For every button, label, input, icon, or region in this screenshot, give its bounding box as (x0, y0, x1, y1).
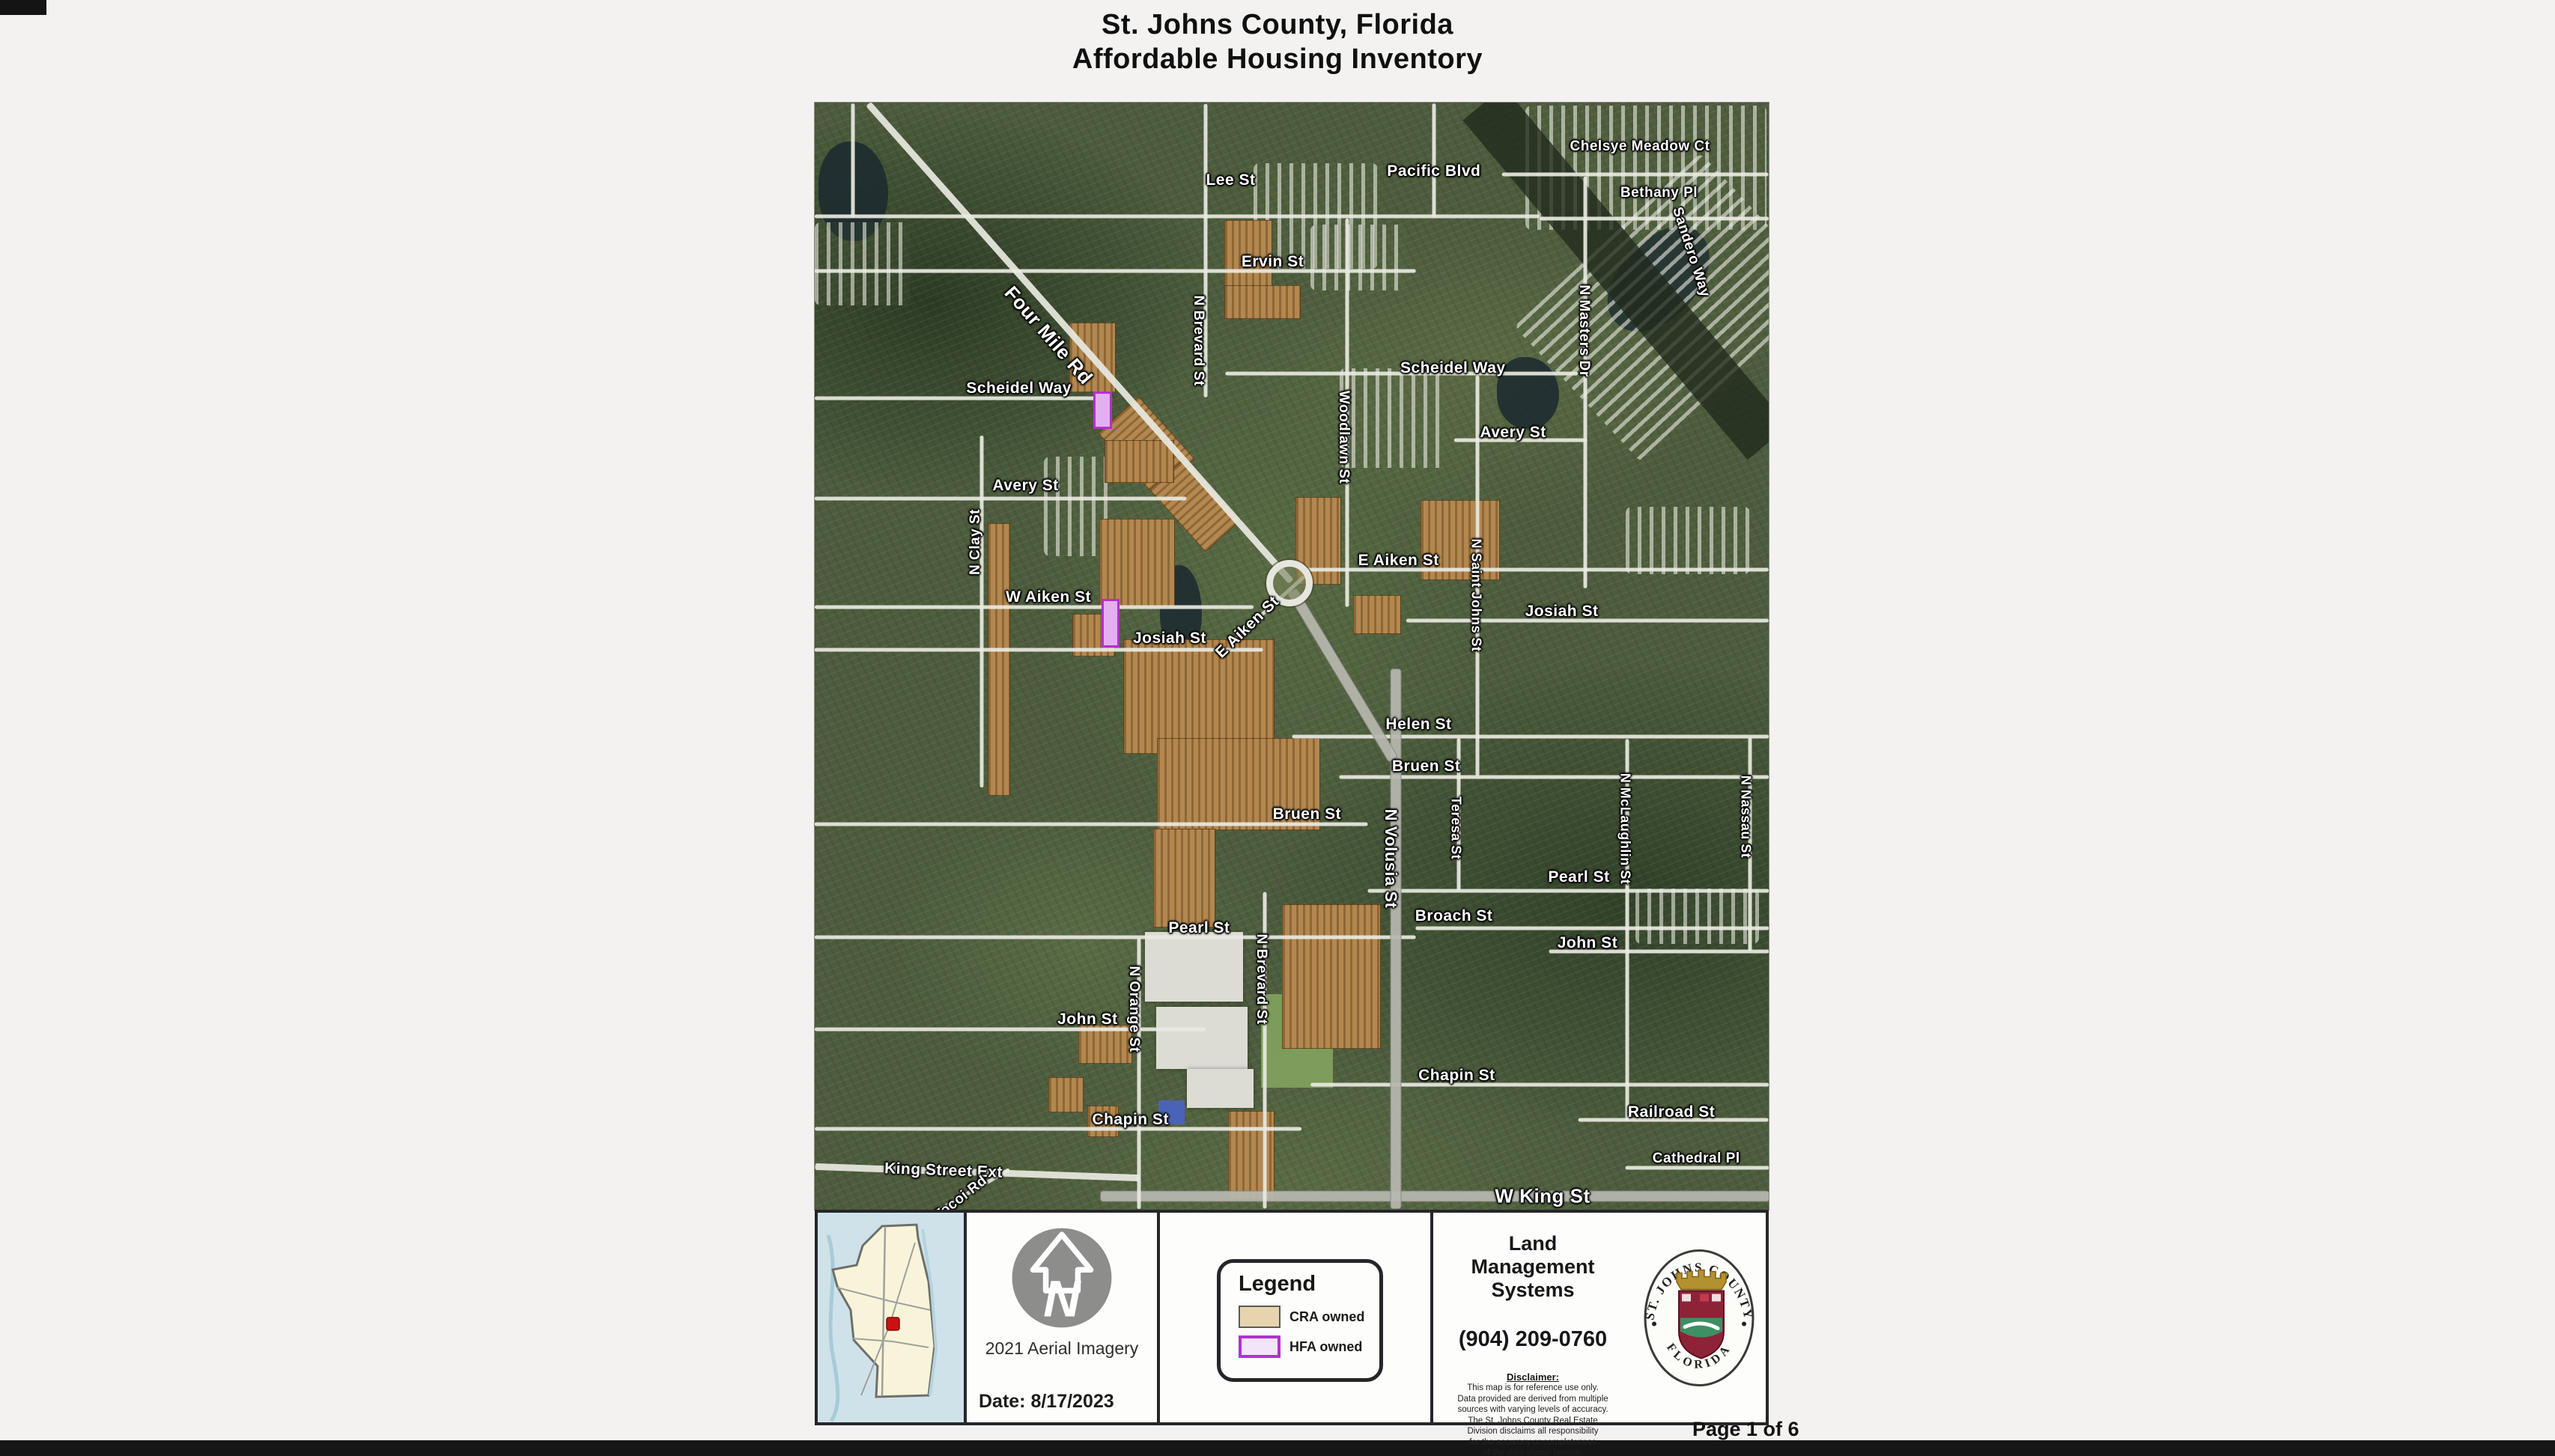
cra-label: CRA owned (1289, 1309, 1364, 1325)
road (1292, 735, 1769, 739)
aerial-map: Lee StPacific BlvdChelsye Meadow CtBetha… (815, 103, 1769, 1210)
county-seal-icon: ST. JOHNS COUNTY FLORIDA (1635, 1241, 1763, 1395)
street-label: Cathedral Pl (1653, 1151, 1740, 1167)
disclaimer-title: Disclaimer: (1433, 1371, 1632, 1383)
cra-parcel (1282, 904, 1381, 1049)
road (815, 1127, 1301, 1131)
street-label: Pearl St (1168, 919, 1230, 937)
street-label: Avery St (1480, 424, 1546, 442)
road (979, 436, 983, 788)
street-label: Teresa St (1448, 796, 1464, 859)
street-label: N Saint Johns St (1468, 539, 1483, 652)
road (1432, 103, 1436, 217)
contact-cell: Land Management Systems (904) 209-0760 D… (1430, 1213, 1766, 1422)
cra-parcel (1105, 440, 1173, 483)
disclaimer-line: Division disclaims all responsibility (1433, 1426, 1632, 1437)
street-label: N Brevard St (1190, 295, 1206, 386)
pond (1497, 357, 1559, 429)
housing-rows (1340, 368, 1444, 468)
disclaimer-line: The St. Johns County Real Estate (1433, 1416, 1632, 1427)
street-label: Chelsye Meadow Ct (1570, 138, 1710, 155)
road (815, 1027, 1206, 1031)
cra-parcel (1123, 639, 1275, 754)
disclaimer-line: sources with varying levels of accuracy. (1433, 1404, 1632, 1416)
title-line-1: St. Johns County, Florida (0, 7, 2555, 42)
housing-rows (815, 222, 910, 305)
road (1584, 177, 1588, 588)
street-label: Broach St (1415, 907, 1493, 925)
road (1368, 889, 1769, 893)
legend-cell: Legend CRA owned HFA owned (1157, 1213, 1430, 1422)
imagery-caption: 2021 Aerial Imagery (967, 1338, 1157, 1359)
phone-number: (904) 209-0760 (1433, 1327, 1632, 1352)
road (815, 936, 1416, 939)
contact-text: Land Management Systems (904) 209-0760 D… (1433, 1213, 1632, 1422)
street-label: Josiah St (1525, 603, 1599, 621)
street-label: Bethany Pl (1620, 185, 1698, 201)
locator-map (818, 1213, 961, 1422)
org-name: Land Management Systems (1450, 1232, 1615, 1302)
street-label: John St (1057, 1011, 1118, 1029)
cra-parcel (1099, 519, 1175, 606)
title-line-2: Affordable Housing Inventory (0, 42, 2555, 76)
legend-item-cra: CRA owned (1239, 1306, 1379, 1328)
street-label: W Aiken St (1006, 588, 1091, 606)
road (1501, 173, 1769, 177)
street-label: Pearl St (1548, 868, 1609, 886)
street-label: W King St (1495, 1185, 1590, 1208)
map-footer: N 2021 Aerial Imagery Date: 8/17/2023 Le… (815, 1210, 1769, 1425)
document-page: St. Johns County, Florida Affordable Hou… (0, 0, 2555, 1456)
street-label: Bruen St (1273, 805, 1342, 823)
locator-marker (887, 1318, 899, 1330)
north-arrow-icon: N (1006, 1222, 1118, 1334)
street-label: Bruen St (1392, 758, 1461, 776)
street-label: N Brevard St (1253, 934, 1269, 1025)
street-label: Chapin St (1418, 1067, 1495, 1085)
cra-parcel (1228, 1111, 1275, 1198)
page-number: Page 1 of 6 (1692, 1418, 1799, 1441)
seal-wrap: ST. JOHNS COUNTY FLORIDA (1632, 1213, 1766, 1422)
legend-box: Legend CRA owned HFA owned (1217, 1259, 1383, 1382)
road (1310, 1082, 1769, 1086)
street-label: N Clay St (967, 509, 984, 575)
hfa-swatch (1239, 1335, 1280, 1358)
cra-parcel (1353, 595, 1401, 634)
street-label: N Volusia St (1381, 809, 1400, 909)
legend-item-hfa: HFA owned (1239, 1335, 1379, 1358)
street-label: N Masters Dr (1576, 284, 1592, 377)
street-label: Josiah St (1133, 630, 1206, 648)
housing-rows (1635, 889, 1760, 944)
county-locator-cell (818, 1213, 964, 1422)
cra-parcel (1224, 285, 1301, 319)
street-label: Scheidel Way (1400, 359, 1506, 377)
map-title: St. Johns County, Florida Affordable Hou… (0, 7, 2555, 76)
road (851, 103, 854, 217)
road (815, 215, 1540, 219)
street-label: John St (1558, 934, 1618, 952)
disclaimer-line: for the accuracy or completeness (1433, 1437, 1632, 1449)
disclaimer-line: This map is for reference use only. (1433, 1383, 1632, 1394)
road (815, 648, 1263, 651)
cra-parcel (1048, 1077, 1084, 1113)
svg-text:N: N (1043, 1270, 1081, 1327)
street-label: Pacific Blvd (1387, 162, 1480, 180)
road (815, 497, 1187, 501)
hfa-label: HFA owned (1289, 1339, 1362, 1355)
street-label: N Nassau St (1738, 776, 1754, 859)
street-label: Railroad St (1628, 1103, 1715, 1121)
disclaimer-line: Data provided are derived from multiple (1433, 1394, 1632, 1405)
housing-rows (1626, 507, 1750, 574)
street-label: N Orange St (1125, 966, 1142, 1053)
street-label: Ervin St (1242, 253, 1304, 271)
building (1187, 1069, 1254, 1108)
street-label: Woodlawn St (1335, 390, 1352, 483)
street-label: Avery St (992, 477, 1058, 495)
building (1156, 1007, 1248, 1069)
road (1101, 1192, 1769, 1201)
street-label: Scheidel Way (966, 380, 1072, 397)
legend-title: Legend (1239, 1272, 1379, 1297)
road (815, 269, 1416, 272)
cra-parcel (1153, 829, 1215, 927)
disclaimer-line: of the data shown hereon. (1433, 1448, 1632, 1456)
cra-parcel (988, 523, 1010, 796)
street-label: N McLaughlin St (1617, 773, 1632, 885)
north-arrow-cell: N 2021 Aerial Imagery Date: 8/17/2023 (964, 1213, 1157, 1422)
hfa-parcel (1102, 599, 1119, 648)
hfa-parcel (1093, 392, 1112, 429)
housing-rows (1310, 225, 1406, 291)
disclaimer-text: This map is for reference use only.Data … (1433, 1383, 1632, 1456)
road (1540, 217, 1769, 221)
street-label: Chapin St (1092, 1111, 1169, 1129)
street-label: Lee St (1206, 171, 1255, 189)
cra-swatch (1239, 1306, 1280, 1328)
bottom-bar (0, 1440, 2555, 1456)
building (1145, 932, 1243, 1002)
date-label: Date: 8/17/2023 (979, 1391, 1114, 1413)
street-label: Helen St (1385, 716, 1451, 734)
street-label: E Aiken St (1358, 552, 1439, 570)
road (1416, 927, 1769, 930)
